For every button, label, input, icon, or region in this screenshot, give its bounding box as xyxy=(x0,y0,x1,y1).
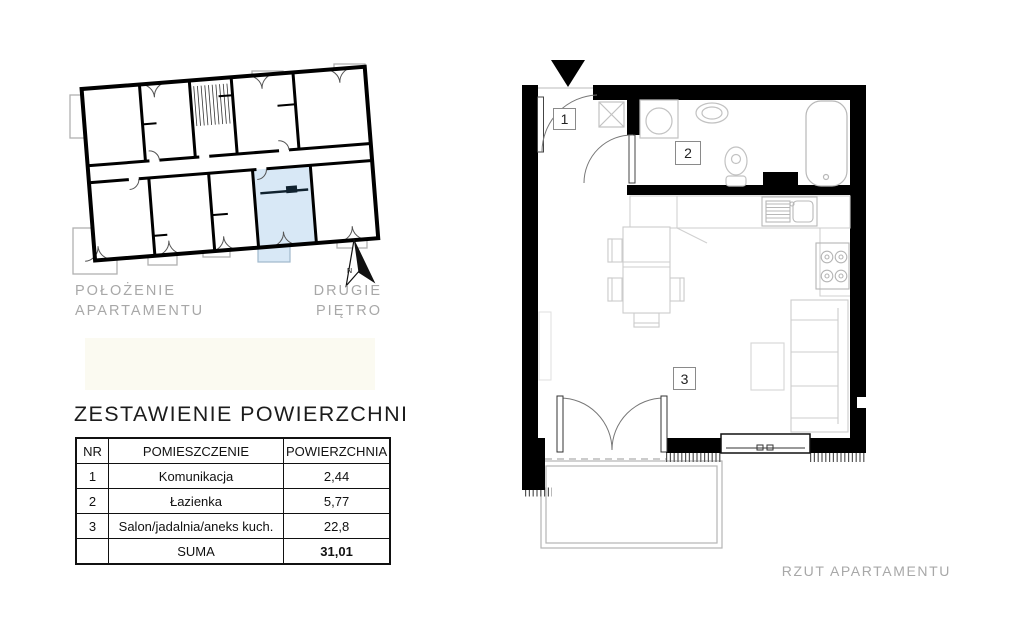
floor-caption-line1: DRUGIE xyxy=(282,281,382,301)
area-table: NR POMIESZCZENIE POWIERZCHNIA 1 Komunika… xyxy=(75,437,391,565)
row-nr: 1 xyxy=(76,464,109,489)
french-doors xyxy=(545,396,667,459)
area-table-header-row: NR POMIESZCZENIE POWIERZCHNIA xyxy=(76,438,390,464)
plan-caption: RZUT APARTAMENTU xyxy=(751,563,951,579)
row-room: Komunikacja xyxy=(109,464,284,489)
round-basin-icon xyxy=(640,100,678,138)
architectural-sheet: { "document": { "location_plan": { "labe… xyxy=(0,0,1024,640)
room-tag-3: 3 xyxy=(673,367,696,390)
toilet-icon xyxy=(725,147,747,186)
entrance-arrow-icon xyxy=(551,60,585,87)
stove-icon xyxy=(816,243,849,289)
row-nr: 3 xyxy=(76,514,109,539)
total-nr-empty xyxy=(76,539,109,565)
room-tag-1: 1 xyxy=(553,108,576,130)
coffee-table xyxy=(751,343,784,390)
total-label: SUMA xyxy=(109,539,284,565)
header-nr: NR xyxy=(76,438,109,464)
exterior-sill-hatch xyxy=(525,458,866,493)
row-area: 2,44 xyxy=(284,464,391,489)
washer-icon xyxy=(599,102,624,127)
dining-set xyxy=(608,227,684,327)
area-table-title: ZESTAWIENIE POWIERZCHNI xyxy=(74,402,394,427)
dining-table xyxy=(623,227,670,313)
north-letter: N xyxy=(347,268,352,275)
location-caption: POŁOŻENIE APARTAMENTU xyxy=(75,281,275,321)
balcony-outline xyxy=(541,461,722,548)
bathtub-icon xyxy=(806,101,847,186)
header-area: POWIERZCHNIA xyxy=(284,438,391,464)
location-caption-line1: POŁOŻENIE xyxy=(75,281,275,301)
apartment-floor-plan xyxy=(505,50,980,610)
highlight-band xyxy=(85,338,375,390)
window xyxy=(721,434,810,453)
building-body xyxy=(72,67,379,262)
radiator xyxy=(539,312,551,380)
table-total-row: SUMA 31,01 xyxy=(76,539,390,565)
row-room: Łazienka xyxy=(109,489,284,514)
floor-caption-line2: PIĘTRO xyxy=(282,301,382,321)
row-room: Salon/jadalnia/aneks kuch. xyxy=(109,514,284,539)
living-furniture xyxy=(751,300,848,432)
total-value: 31,01 xyxy=(284,539,391,565)
row-area: 5,77 xyxy=(284,489,391,514)
location-caption-line2: APARTAMENTU xyxy=(75,301,275,321)
floor-caption: DRUGIE PIĘTRO xyxy=(282,281,382,321)
right-wall-gap xyxy=(857,397,866,408)
kitchen-sink-icon xyxy=(762,197,817,226)
row-area: 22,8 xyxy=(284,514,391,539)
sink-icon xyxy=(696,103,728,123)
row-nr: 2 xyxy=(76,489,109,514)
header-room: POMIESZCZENIE xyxy=(109,438,284,464)
building-overview-plan xyxy=(60,5,390,295)
table-row: 2 Łazienka 5,77 xyxy=(76,489,390,514)
table-row: 1 Komunikacja 2,44 xyxy=(76,464,390,489)
room-tag-2: 2 xyxy=(675,141,701,165)
table-row: 3 Salon/jadalnia/aneks kuch. 22,8 xyxy=(76,514,390,539)
